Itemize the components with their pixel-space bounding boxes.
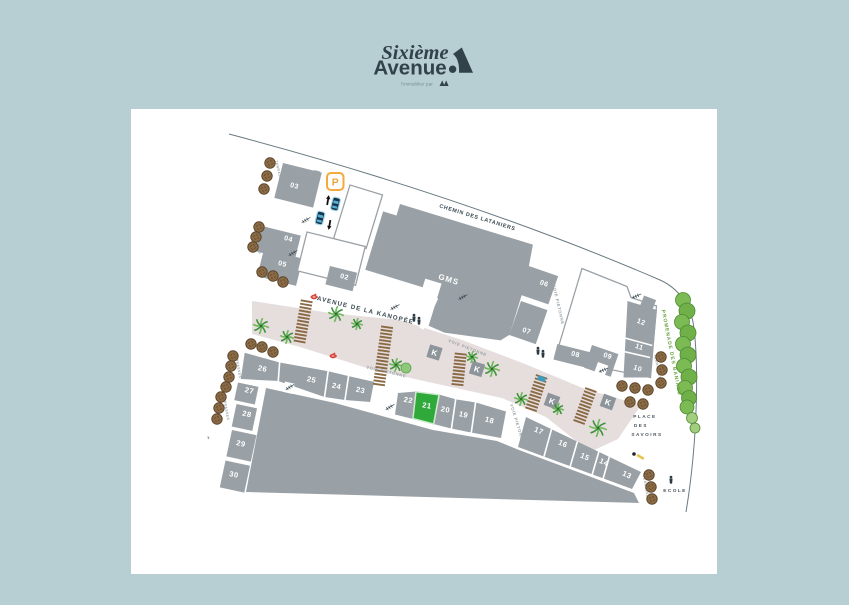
svg-text:30: 30 [229, 469, 240, 480]
svg-text:21: 21 [422, 400, 433, 410]
svg-text:27: 27 [244, 385, 255, 396]
svg-text:P: P [332, 177, 339, 189]
svg-text:DES: DES [634, 423, 648, 428]
svg-text:SAVOIRS: SAVOIRS [631, 432, 662, 437]
svg-text:28: 28 [242, 409, 253, 420]
svg-text:PLACE: PLACE [633, 414, 656, 419]
svg-text:20: 20 [440, 404, 451, 415]
svg-text:Avenue: Avenue [373, 57, 446, 80]
svg-text:22: 22 [403, 395, 414, 405]
svg-text:29: 29 [236, 438, 247, 449]
svg-text:ECOLE: ECOLE [663, 488, 687, 494]
svg-text:l'immobilier par: l'immobilier par [401, 82, 433, 87]
